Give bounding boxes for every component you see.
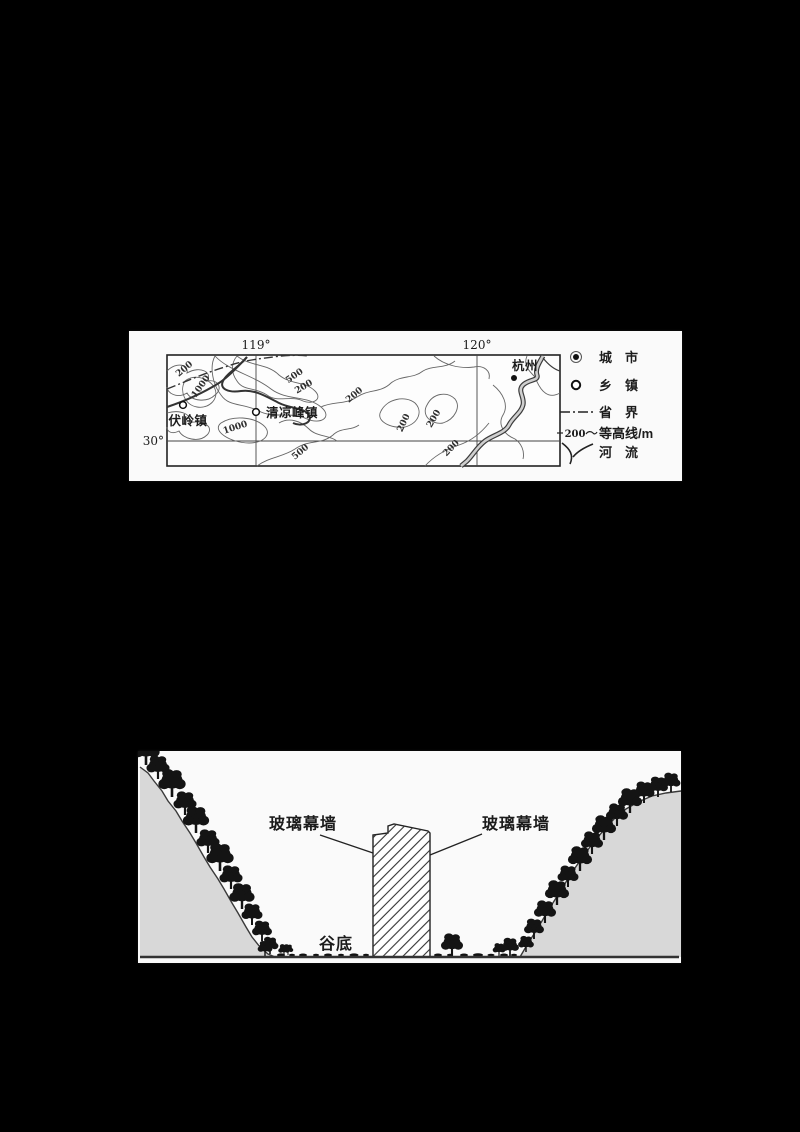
legend-row-river: 河 流	[562, 443, 638, 464]
leader-line-right	[430, 834, 482, 855]
valley-cross-section-figure: 玻璃幕墙 玻璃幕墙 谷底	[138, 751, 681, 963]
town-fuling-label: 伏岭镇	[168, 413, 207, 428]
building	[373, 824, 430, 957]
legend-row-city: 城 市	[571, 350, 639, 365]
building-hatch	[373, 824, 430, 957]
legend-row-province-boundary: 省 界	[560, 405, 638, 420]
river-symbol-branch	[573, 444, 593, 457]
lon-label-120: 120°	[463, 338, 492, 352]
lat-label-30: 30°	[143, 434, 164, 448]
tree-icon	[501, 938, 519, 956]
leader-line-left	[320, 835, 373, 853]
town-fuling-circle	[180, 402, 187, 409]
legend-row-town: 乡 镇	[572, 378, 638, 393]
town-symbol	[572, 381, 580, 389]
legend-town-label: 乡 镇	[599, 378, 638, 393]
city-hangzhou-label: 杭州	[512, 358, 538, 373]
legend-city-label: 城 市	[599, 350, 638, 365]
glass-wall-label-left: 玻璃幕墙	[269, 814, 337, 833]
map-legend: 城 市 乡 镇 省 界 200 等高线/m 河 流	[557, 350, 653, 464]
river-symbol	[562, 443, 572, 464]
tree-icon	[441, 933, 463, 956]
town-qingliangfeng-label: 清凉峰镇	[266, 405, 318, 420]
contour-map-svg: 119° 120° 30° 杭州 伏岭镇 清凉峰镇 200 1000 500 2…	[129, 331, 682, 481]
city-symbol	[573, 354, 579, 360]
contour-symbol-value: 200	[565, 429, 586, 440]
valley-bottom-label: 谷底	[319, 934, 353, 953]
contour-symbol-dash-right	[586, 432, 597, 434]
city-hangzhou-dot	[511, 375, 517, 381]
glass-wall-label-right: 玻璃幕墙	[482, 814, 550, 833]
legend-province-boundary-label: 省 界	[598, 405, 638, 420]
legend-contour-label: 等高线/m	[598, 426, 653, 441]
legend-river-label: 河 流	[599, 445, 638, 460]
contour-map-figure: 119° 120° 30° 杭州 伏岭镇 清凉峰镇 200 1000 500 2…	[129, 331, 682, 481]
valley-cross-section-svg: 玻璃幕墙 玻璃幕墙 谷底	[138, 751, 681, 963]
legend-row-contour: 200 等高线/m	[557, 426, 653, 441]
map-frame	[167, 355, 560, 466]
lon-label-119: 119°	[242, 338, 271, 352]
town-qingliangfeng-circle	[253, 409, 260, 416]
